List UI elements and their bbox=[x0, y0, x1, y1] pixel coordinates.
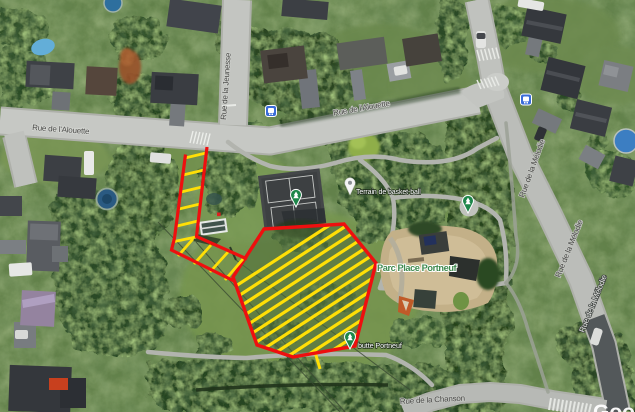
svg-text:Goog: Goog bbox=[593, 401, 635, 412]
svg-text:butte Portneuf: butte Portneuf bbox=[358, 341, 402, 350]
svg-text:Terrain de basket-ball: Terrain de basket-ball bbox=[356, 189, 421, 196]
svg-text:Parc Place Portneuf: Parc Place Portneuf bbox=[377, 263, 458, 273]
